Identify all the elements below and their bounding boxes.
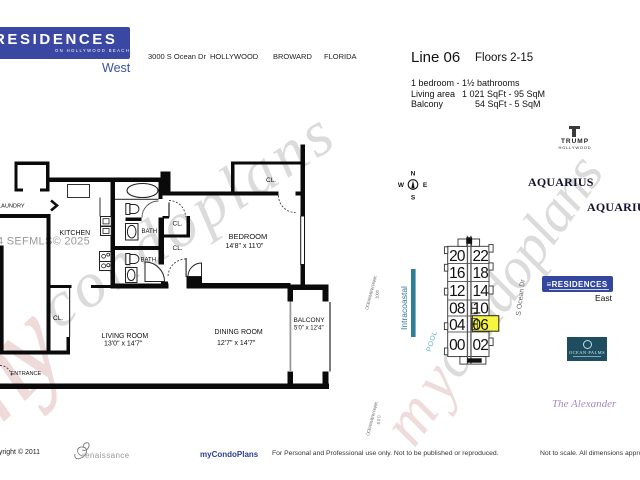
svg-text:CL.: CL. — [53, 315, 63, 322]
svg-text:BEDROOM: BEDROOM — [229, 232, 268, 241]
svg-text:04: 04 — [449, 317, 466, 334]
svg-text:ENTRANCE: ENTRANCE — [11, 371, 42, 377]
svg-text:CL.: CL. — [173, 220, 183, 227]
svg-text:4 SEFMLS© 2025: 4 SEFMLS© 2025 — [0, 236, 90, 248]
svg-text:CL.: CL. — [266, 177, 276, 184]
svg-text:14'8" x 11'0": 14'8" x 11'0" — [226, 243, 264, 250]
svg-text:BATH: BATH — [141, 258, 157, 264]
svg-text:BALCONY: BALCONY — [294, 317, 326, 324]
svg-text:06: 06 — [473, 317, 489, 334]
svg-text:BATH: BATH — [142, 229, 158, 235]
svg-text:18: 18 — [473, 265, 489, 282]
svg-text:1000: 1000 — [375, 289, 380, 299]
svg-text:condoplans: condoplans — [27, 98, 346, 342]
svg-text:12'7" x 14'7": 12'7" x 14'7" — [217, 340, 256, 347]
svg-text:LIVING ROOM: LIVING ROOM — [102, 333, 149, 340]
svg-text:02: 02 — [473, 337, 489, 354]
svg-text:22: 22 — [473, 248, 489, 265]
svg-text:12: 12 — [449, 283, 465, 300]
svg-text:10: 10 — [473, 301, 489, 318]
svg-text:DINING ROOM: DINING ROOM — [215, 329, 263, 336]
svg-text:20: 20 — [449, 248, 465, 265]
svg-text:N: N — [411, 171, 416, 178]
svg-text:16: 16 — [449, 265, 465, 282]
svg-text:W: W — [398, 182, 405, 189]
svg-text:KITCHEN: KITCHEN — [60, 230, 91, 237]
svg-text:14: 14 — [473, 283, 490, 300]
svg-text:00: 00 — [449, 337, 465, 354]
svg-text:13'0" x 14'7": 13'0" x 14'7" — [104, 341, 143, 348]
svg-text:Intracoastal: Intracoastal — [399, 286, 409, 330]
svg-text:CL.: CL. — [173, 245, 183, 252]
svg-text:08: 08 — [449, 301, 465, 318]
svg-text:E: E — [423, 182, 428, 189]
svg-text:S: S — [411, 195, 416, 202]
svg-text:800: 800 — [376, 415, 381, 425]
svg-text:5'0" x 12'4": 5'0" x 12'4" — [294, 326, 324, 332]
svg-text:LAUNDRY: LAUNDRY — [0, 204, 25, 210]
